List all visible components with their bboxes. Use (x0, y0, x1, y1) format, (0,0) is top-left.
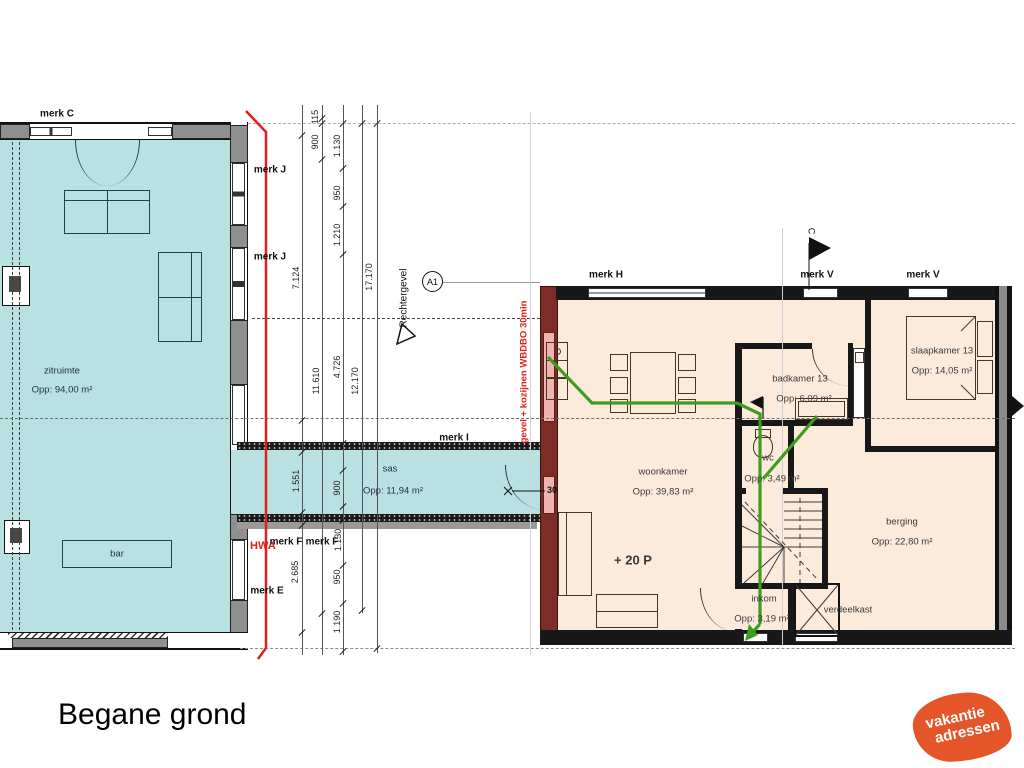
entry-door (743, 633, 768, 642)
kitchen-cabinet (546, 378, 568, 400)
wall-pier (12, 638, 168, 648)
wall-wedge (1012, 396, 1024, 416)
reference-line (252, 318, 540, 319)
dimension-label: 1.190 (332, 611, 342, 634)
wall (540, 630, 1012, 645)
reference-line (240, 648, 1015, 649)
room-name: zitruimte (44, 366, 80, 377)
sofa (158, 252, 202, 342)
merk-label: merk F (270, 537, 303, 548)
merk-label: merk V (906, 270, 939, 281)
wall-pier (230, 320, 248, 385)
room-area: Opp: 3,49 m² (744, 474, 799, 485)
dining-table (630, 352, 676, 414)
sofa (558, 512, 592, 596)
bed (906, 316, 976, 400)
vakantieadressen-logo: vakantie adressen (911, 690, 1014, 765)
dimension-line (322, 105, 323, 655)
room-name: badkamer 13 (772, 374, 827, 385)
dimension-label: 1.210 (332, 224, 342, 247)
dimension-label: 900 (332, 480, 342, 495)
section-marker-a1: A1 (422, 271, 443, 292)
window-merk-v (803, 288, 838, 298)
merk-label: merk C (40, 109, 74, 120)
pillow (977, 321, 993, 357)
sofa (64, 190, 150, 234)
sas-floor (231, 450, 540, 514)
window (232, 540, 245, 600)
wall-pier (230, 125, 248, 163)
dimension-line (377, 105, 378, 653)
window (30, 127, 72, 136)
room-name: verdeelkast (824, 605, 873, 616)
pillow (977, 360, 993, 394)
wall-pier (230, 225, 248, 248)
dimension-label: 900 (310, 134, 320, 149)
room-name: woonkamer (638, 467, 687, 478)
dimension-label: 950 (332, 569, 342, 584)
dimension-label: 2.685 (290, 561, 300, 584)
room-name: berging (886, 517, 918, 528)
dimension-line (302, 105, 303, 655)
window (148, 127, 172, 136)
merk-label: merk H (589, 270, 623, 281)
merk-label: merk J (254, 165, 286, 176)
chair (678, 354, 696, 371)
section-marker-label: A1 (427, 277, 438, 287)
center-line (12, 142, 13, 630)
callout-line (443, 282, 540, 283)
door-opening (746, 488, 782, 494)
wall (865, 300, 871, 450)
chair (610, 354, 628, 371)
room-area: Opp: 14,05 m² (912, 366, 973, 377)
page-title: Begane grond (58, 698, 247, 732)
dimension-label: 1.551 (291, 470, 301, 493)
capacity-label: + 20 P (614, 553, 652, 568)
fire-door (543, 476, 555, 514)
window-merk-h (588, 288, 706, 298)
dimension-label: 1.130 (332, 135, 342, 158)
center-line (19, 142, 20, 630)
chair (678, 377, 696, 394)
window (232, 248, 245, 320)
dimension-label: 950 (332, 185, 342, 200)
wall (237, 514, 543, 522)
grid-line (782, 228, 783, 645)
dimension-label: 12.170 (350, 367, 360, 395)
chair (678, 399, 696, 413)
wall (865, 446, 995, 452)
room-area: Opp: 94,00 m² (32, 385, 93, 396)
grid-line (530, 112, 531, 655)
dimension-label: 11.610 (311, 368, 321, 395)
sofa (596, 594, 658, 628)
room-area: Opp: 11,94 m² (363, 486, 423, 497)
room-area: Opp: 39,83 m² (633, 487, 694, 498)
wall-pier (0, 124, 30, 139)
kitchen-sink (546, 342, 568, 378)
washbasin (855, 352, 864, 363)
room-area: Opp: 22,80 m² (872, 537, 933, 548)
rechtergevel-label: Rechtergevel (399, 269, 410, 328)
center-line (0, 418, 1015, 419)
door-rating-label: 30 (547, 485, 557, 495)
window (232, 385, 245, 445)
room-name: slaapkamer 13 (911, 346, 973, 357)
chair (610, 399, 628, 413)
dimension-line (362, 105, 363, 613)
room-name: wc (762, 453, 774, 464)
merk-label: merk E (250, 586, 283, 597)
wall-footing (237, 522, 537, 529)
room-name: inkom (751, 594, 776, 605)
fire-wall-note: gevel + kozijnen WBDBO 30min (519, 301, 530, 444)
fire-separation-line (246, 111, 266, 659)
chair (610, 377, 628, 394)
window (232, 163, 245, 225)
wall (822, 488, 828, 588)
wall (237, 442, 543, 450)
flag-label: C (806, 228, 816, 235)
window-merk-v (908, 288, 948, 298)
dimension-label: 115 (310, 110, 320, 124)
wall (735, 420, 853, 426)
dimension-line (343, 105, 344, 655)
merk-label: merk V (800, 270, 833, 281)
wall (995, 286, 1012, 645)
floor-plan: zitruimte Opp: 94,00 m² bar sas Opp: 11,… (0, 0, 1024, 768)
flag-marker (809, 237, 831, 290)
room-name: bar (110, 549, 124, 560)
dimension-label: 7.124 (291, 267, 301, 290)
merk-label: merk I (439, 433, 468, 444)
dimension-label: 17.170 (364, 263, 374, 291)
merk-label: merk J (254, 252, 286, 263)
room-name: sas (383, 464, 398, 475)
dimension-label: 1.130 (333, 529, 343, 552)
dimension-label: 4.726 (332, 356, 342, 379)
room-area: Opp: 3,19 m² (734, 614, 789, 625)
room-area: Opp: 6,09 m² (776, 394, 831, 405)
logo-text: vakantie adressen (924, 702, 1001, 748)
